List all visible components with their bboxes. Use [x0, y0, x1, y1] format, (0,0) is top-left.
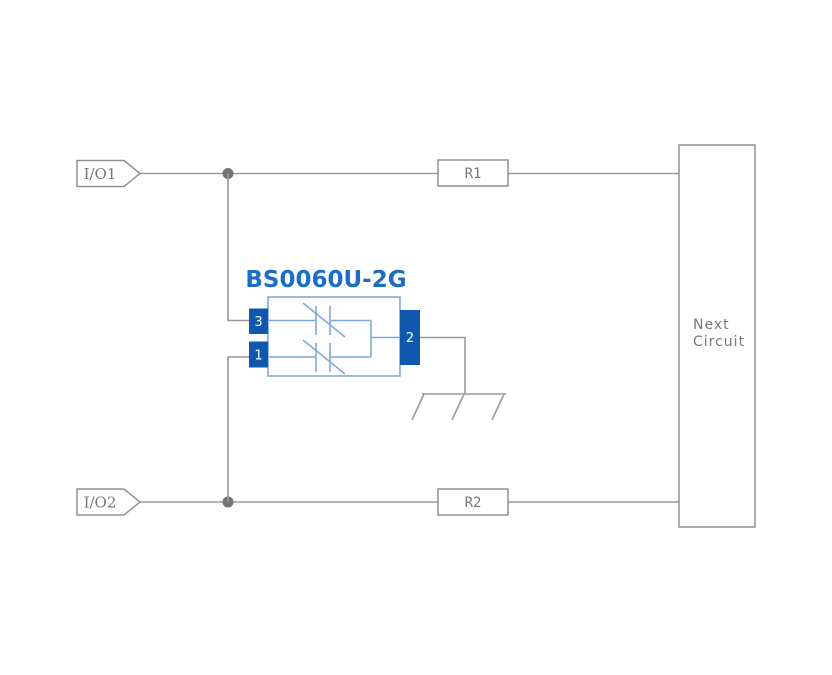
- component-title: BS0060U-2G: [245, 267, 406, 293]
- pin1-number: 1: [254, 349, 262, 364]
- next-circuit-label-line1: Next: [693, 317, 730, 333]
- wire-pin2-to-ground: [420, 338, 465, 395]
- schematic-page: I/O1 R1 I/O2 R2 Next Circuit BS0060U-2G: [0, 0, 832, 675]
- ground-net: [412, 338, 506, 421]
- pin2-number: 2: [406, 331, 414, 346]
- io1-label: I/O1: [84, 165, 117, 183]
- wire-bottom-branch-to-pin1: [228, 357, 249, 502]
- chassis-ground-icon: [412, 394, 506, 420]
- next-circuit-label-line2: Circuit: [693, 334, 745, 350]
- bottom-net: I/O2 R2: [77, 489, 679, 515]
- top-net: I/O1 R1: [77, 160, 679, 187]
- ground-hatch-3: [492, 394, 504, 420]
- ground-hatch-2: [452, 394, 464, 420]
- r1-label: R1: [465, 166, 482, 182]
- circuit-diagram: I/O1 R1 I/O2 R2 Next Circuit BS0060U-2G: [0, 0, 832, 675]
- pin3-number: 3: [254, 315, 262, 330]
- next-circuit-block: Next Circuit: [679, 145, 755, 527]
- ground-hatch-1: [412, 394, 424, 420]
- esd-component: BS0060U-2G 3: [245, 267, 420, 376]
- r2-label: R2: [465, 495, 482, 511]
- wire-top-branch-to-pin3: [228, 174, 249, 321]
- io2-label: I/O2: [84, 494, 117, 512]
